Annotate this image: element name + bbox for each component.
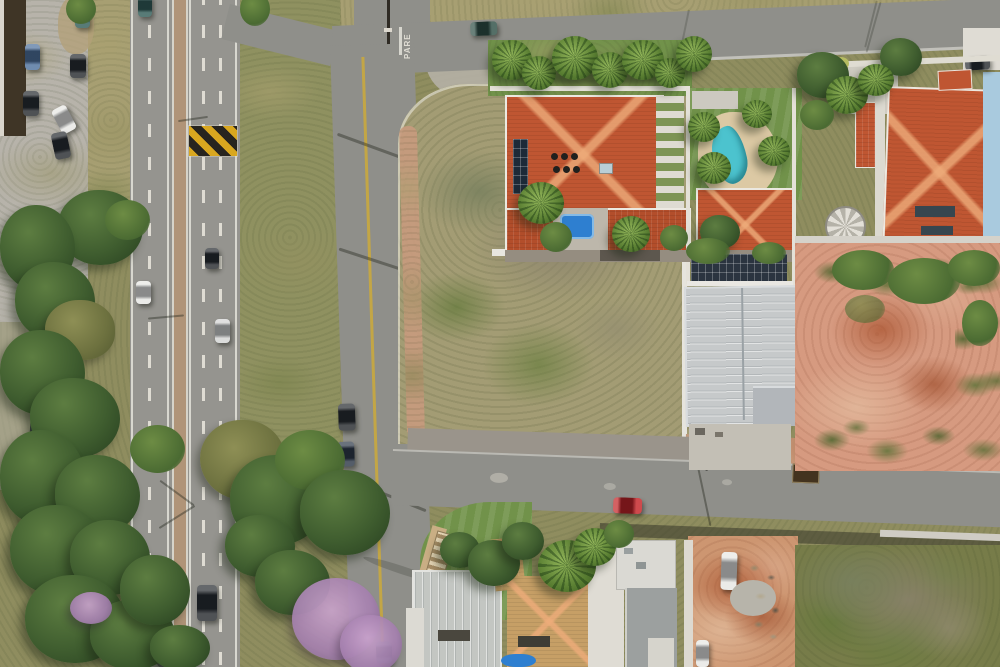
white-van	[720, 552, 737, 591]
car-highway	[205, 248, 219, 269]
yard-item	[715, 432, 723, 437]
parked-suv	[338, 403, 356, 431]
pergola	[438, 630, 470, 641]
stop-line	[399, 27, 402, 55]
highway-right-verge	[240, 0, 340, 480]
road-patch	[604, 483, 616, 490]
palm-tree	[758, 136, 790, 166]
utility-pole	[387, 0, 390, 46]
pole-shadow	[337, 133, 404, 159]
white-structure	[406, 608, 424, 667]
skylight-panels	[921, 226, 953, 235]
palm-tree	[676, 36, 712, 72]
parked-car	[23, 91, 39, 116]
skylight-panels	[915, 206, 955, 217]
small-pool	[501, 654, 536, 667]
weeds	[795, 420, 1000, 470]
road-patch	[490, 473, 508, 484]
ac-unit	[636, 562, 646, 569]
roof-vent	[571, 153, 578, 160]
scrub-lot-southeast	[795, 545, 1000, 667]
yard-item	[695, 428, 705, 435]
lane-dash-line	[202, 0, 205, 667]
small-white-roof	[648, 638, 674, 667]
shrub	[105, 200, 150, 240]
orange-shed-roof	[937, 69, 972, 91]
shrub	[686, 238, 730, 264]
blue-wall	[983, 72, 1000, 240]
junk-pile	[746, 554, 788, 648]
striped-driveway	[656, 96, 684, 208]
tree	[120, 555, 190, 625]
blooming-tree-purple	[340, 615, 402, 667]
shrub	[962, 300, 998, 346]
tree	[300, 470, 390, 555]
roof-vent	[561, 153, 568, 160]
palm-tree	[522, 56, 556, 90]
speed-bump-chevrons	[189, 126, 237, 156]
car-highway	[136, 281, 151, 304]
lane-edge-line	[189, 0, 191, 667]
palm-tree	[552, 36, 598, 80]
blooming-tree-purple	[70, 592, 112, 624]
palm-tree	[518, 182, 564, 224]
roof-vent	[553, 166, 560, 173]
roof-vent	[563, 166, 570, 173]
car-highway	[215, 319, 230, 343]
aerial-photo: PARE	[0, 0, 1000, 667]
warehouse	[685, 252, 805, 472]
shrub	[752, 242, 786, 264]
shrub	[540, 222, 572, 252]
pare-road-marking: PARE	[403, 25, 417, 59]
shrub	[130, 425, 185, 473]
pole-marker	[384, 28, 392, 32]
tree	[150, 625, 210, 667]
roof-vent	[551, 153, 558, 160]
palm-tree	[697, 152, 731, 184]
construction-yard	[688, 536, 798, 667]
palm-tree	[742, 100, 772, 128]
highway-right-carriageway	[188, 0, 240, 667]
shrub	[832, 250, 894, 290]
parked-car	[25, 44, 40, 70]
palm-tree	[858, 64, 894, 96]
truck-highway	[197, 585, 217, 621]
shrub	[800, 100, 834, 130]
car-on-street	[470, 21, 498, 36]
front-wall	[490, 86, 690, 91]
patio-pavers	[692, 91, 738, 109]
parked-suv	[70, 54, 86, 78]
ac-unit	[624, 548, 633, 554]
window-grille	[518, 636, 550, 647]
shrub	[660, 225, 688, 251]
roof-seam	[741, 288, 745, 420]
skylight	[599, 163, 613, 174]
tree	[502, 522, 544, 560]
warehouse-annex	[753, 386, 797, 426]
parked-white-car	[696, 640, 709, 667]
road-patch	[722, 479, 732, 485]
shrub	[845, 295, 885, 323]
roof-vent	[573, 166, 580, 173]
shrub	[948, 250, 1000, 286]
building-edge	[0, 0, 4, 136]
palm-tree	[612, 216, 650, 252]
car-highway	[138, 0, 152, 17]
red-car	[613, 497, 643, 514]
shrub	[604, 520, 634, 548]
yard-wall	[684, 540, 693, 667]
palm-tree	[688, 112, 720, 142]
